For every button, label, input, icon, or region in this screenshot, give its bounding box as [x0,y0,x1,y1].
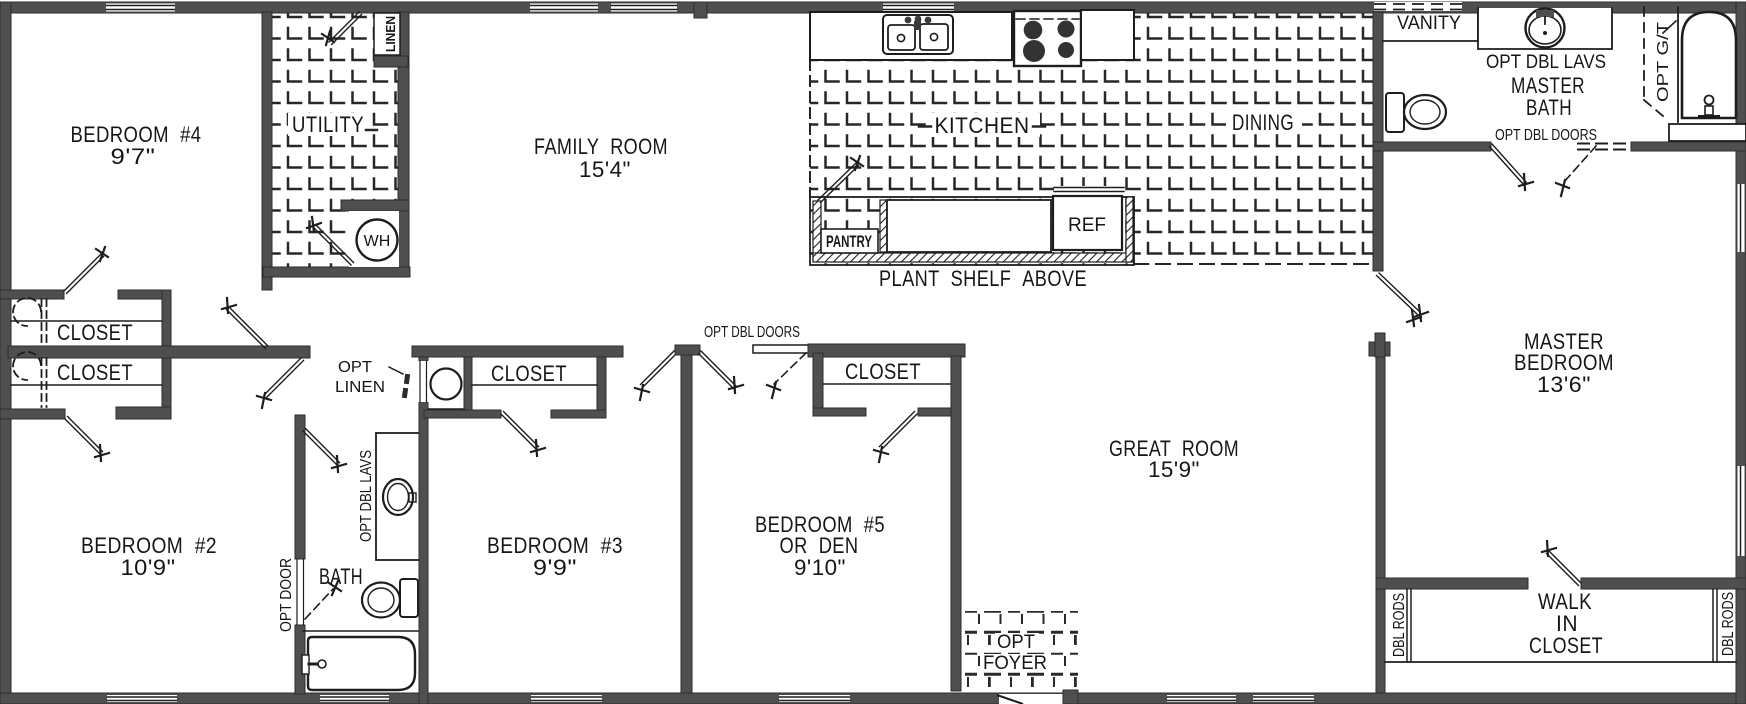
svg-text:PLANT SHELF ABOVE: PLANT SHELF ABOVE [879,266,1087,291]
svg-text:DBL RODS: DBL RODS [1391,593,1408,657]
svg-text:DINING: DINING [1232,110,1294,135]
svg-text:9'9": 9'9" [533,555,577,580]
svg-text:KITCHEN: KITCHEN [935,113,1030,138]
svg-text:10'9": 10'9" [121,555,176,580]
svg-text:FOYER: FOYER [983,653,1047,674]
svg-text:WH: WH [364,233,391,250]
svg-text:OPT DBL LAVS: OPT DBL LAVS [358,450,375,542]
svg-text:CLOSET: CLOSET [1529,633,1603,658]
svg-text:VANITY: VANITY [1397,13,1461,34]
svg-text:OPT G/T: OPT G/T [1655,22,1672,102]
svg-text:UTILITY: UTILITY [292,112,364,137]
svg-text:DBL RODS: DBL RODS [1720,592,1737,656]
svg-text:CLOSET: CLOSET [491,361,567,386]
svg-text:CLOSET: CLOSET [57,360,133,385]
svg-text:OPT: OPT [338,359,372,376]
svg-text:BATH: BATH [319,564,363,589]
svg-text:OPT DBL LAVS: OPT DBL LAVS [1486,52,1606,73]
svg-text:OPT DOOR: OPT DOOR [278,558,295,632]
svg-text:9'7": 9'7" [111,144,156,169]
svg-text:PANTRY: PANTRY [826,232,872,251]
svg-text:FAMILY ROOM: FAMILY ROOM [534,134,668,159]
svg-text:9'10": 9'10" [794,555,846,580]
svg-text:OPT DBL DOORS: OPT DBL DOORS [704,324,800,341]
svg-text:LINEN: LINEN [383,16,398,52]
svg-text:OPT: OPT [997,632,1035,653]
svg-text:15'4": 15'4" [579,157,631,182]
svg-text:REF: REF [1068,215,1106,236]
svg-text:CLOSET: CLOSET [57,320,133,345]
svg-text:BATH: BATH [1526,95,1572,120]
svg-text:15'9": 15'9" [1148,457,1200,482]
svg-text:CLOSET: CLOSET [845,359,921,384]
svg-text:13'6": 13'6" [1537,372,1591,397]
svg-text:OPT DBL DOORS: OPT DBL DOORS [1495,127,1597,144]
svg-text:LINEN: LINEN [335,379,385,396]
